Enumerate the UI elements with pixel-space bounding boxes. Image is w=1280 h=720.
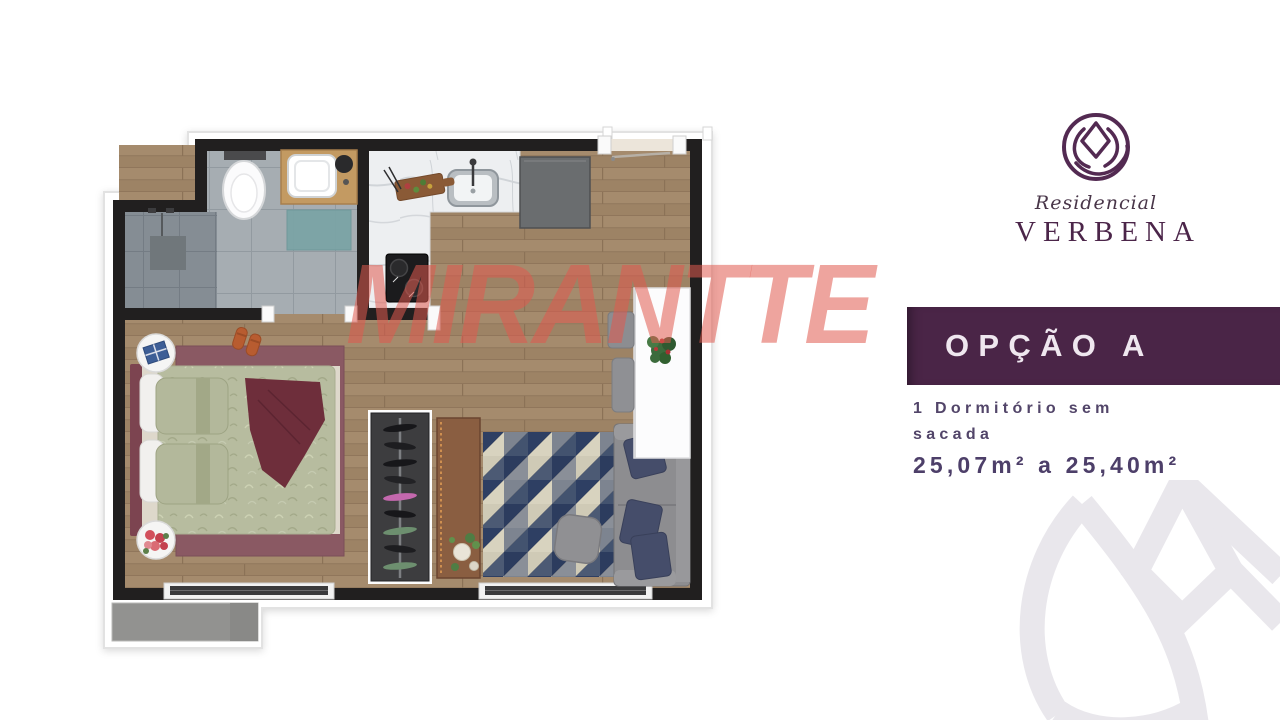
option-banner: OPÇÃO A bbox=[907, 307, 1280, 385]
desk bbox=[634, 288, 690, 458]
service-ledge bbox=[112, 603, 258, 641]
geometric-rug bbox=[483, 432, 622, 577]
sideboard bbox=[437, 418, 480, 578]
brand-name: VERBENA bbox=[1008, 216, 1184, 249]
bedroom-window bbox=[164, 583, 334, 599]
unit-description-line1: 1 Dormitório sem bbox=[913, 396, 1114, 422]
nightstand-top bbox=[137, 334, 175, 372]
unit-area-range: 25,07m² a 25,40m² bbox=[913, 452, 1180, 479]
wardrobe bbox=[368, 410, 432, 584]
refrigerator bbox=[520, 157, 590, 228]
unit-description: 1 Dormitório sem sacada bbox=[913, 396, 1114, 448]
double-bed bbox=[130, 364, 340, 536]
vanity-sink bbox=[281, 150, 357, 204]
unit-description-line2: sacada bbox=[913, 422, 1114, 448]
stool bbox=[608, 312, 634, 348]
corner-cap bbox=[703, 127, 712, 140]
bench bbox=[612, 358, 634, 412]
page: Residencial VERBENA OPÇÃO A 1 Dormitório… bbox=[0, 0, 1280, 720]
nightstand-bottom bbox=[137, 521, 175, 559]
ottoman bbox=[553, 513, 603, 565]
cooktop bbox=[386, 254, 428, 302]
brand-block: Residencial VERBENA bbox=[1008, 106, 1184, 249]
bath-mat bbox=[287, 210, 351, 250]
option-banner-label: OPÇÃO A bbox=[907, 328, 1154, 364]
tulip-in-circle-icon bbox=[1008, 106, 1184, 192]
residencial-label: Residencial bbox=[1008, 192, 1184, 214]
